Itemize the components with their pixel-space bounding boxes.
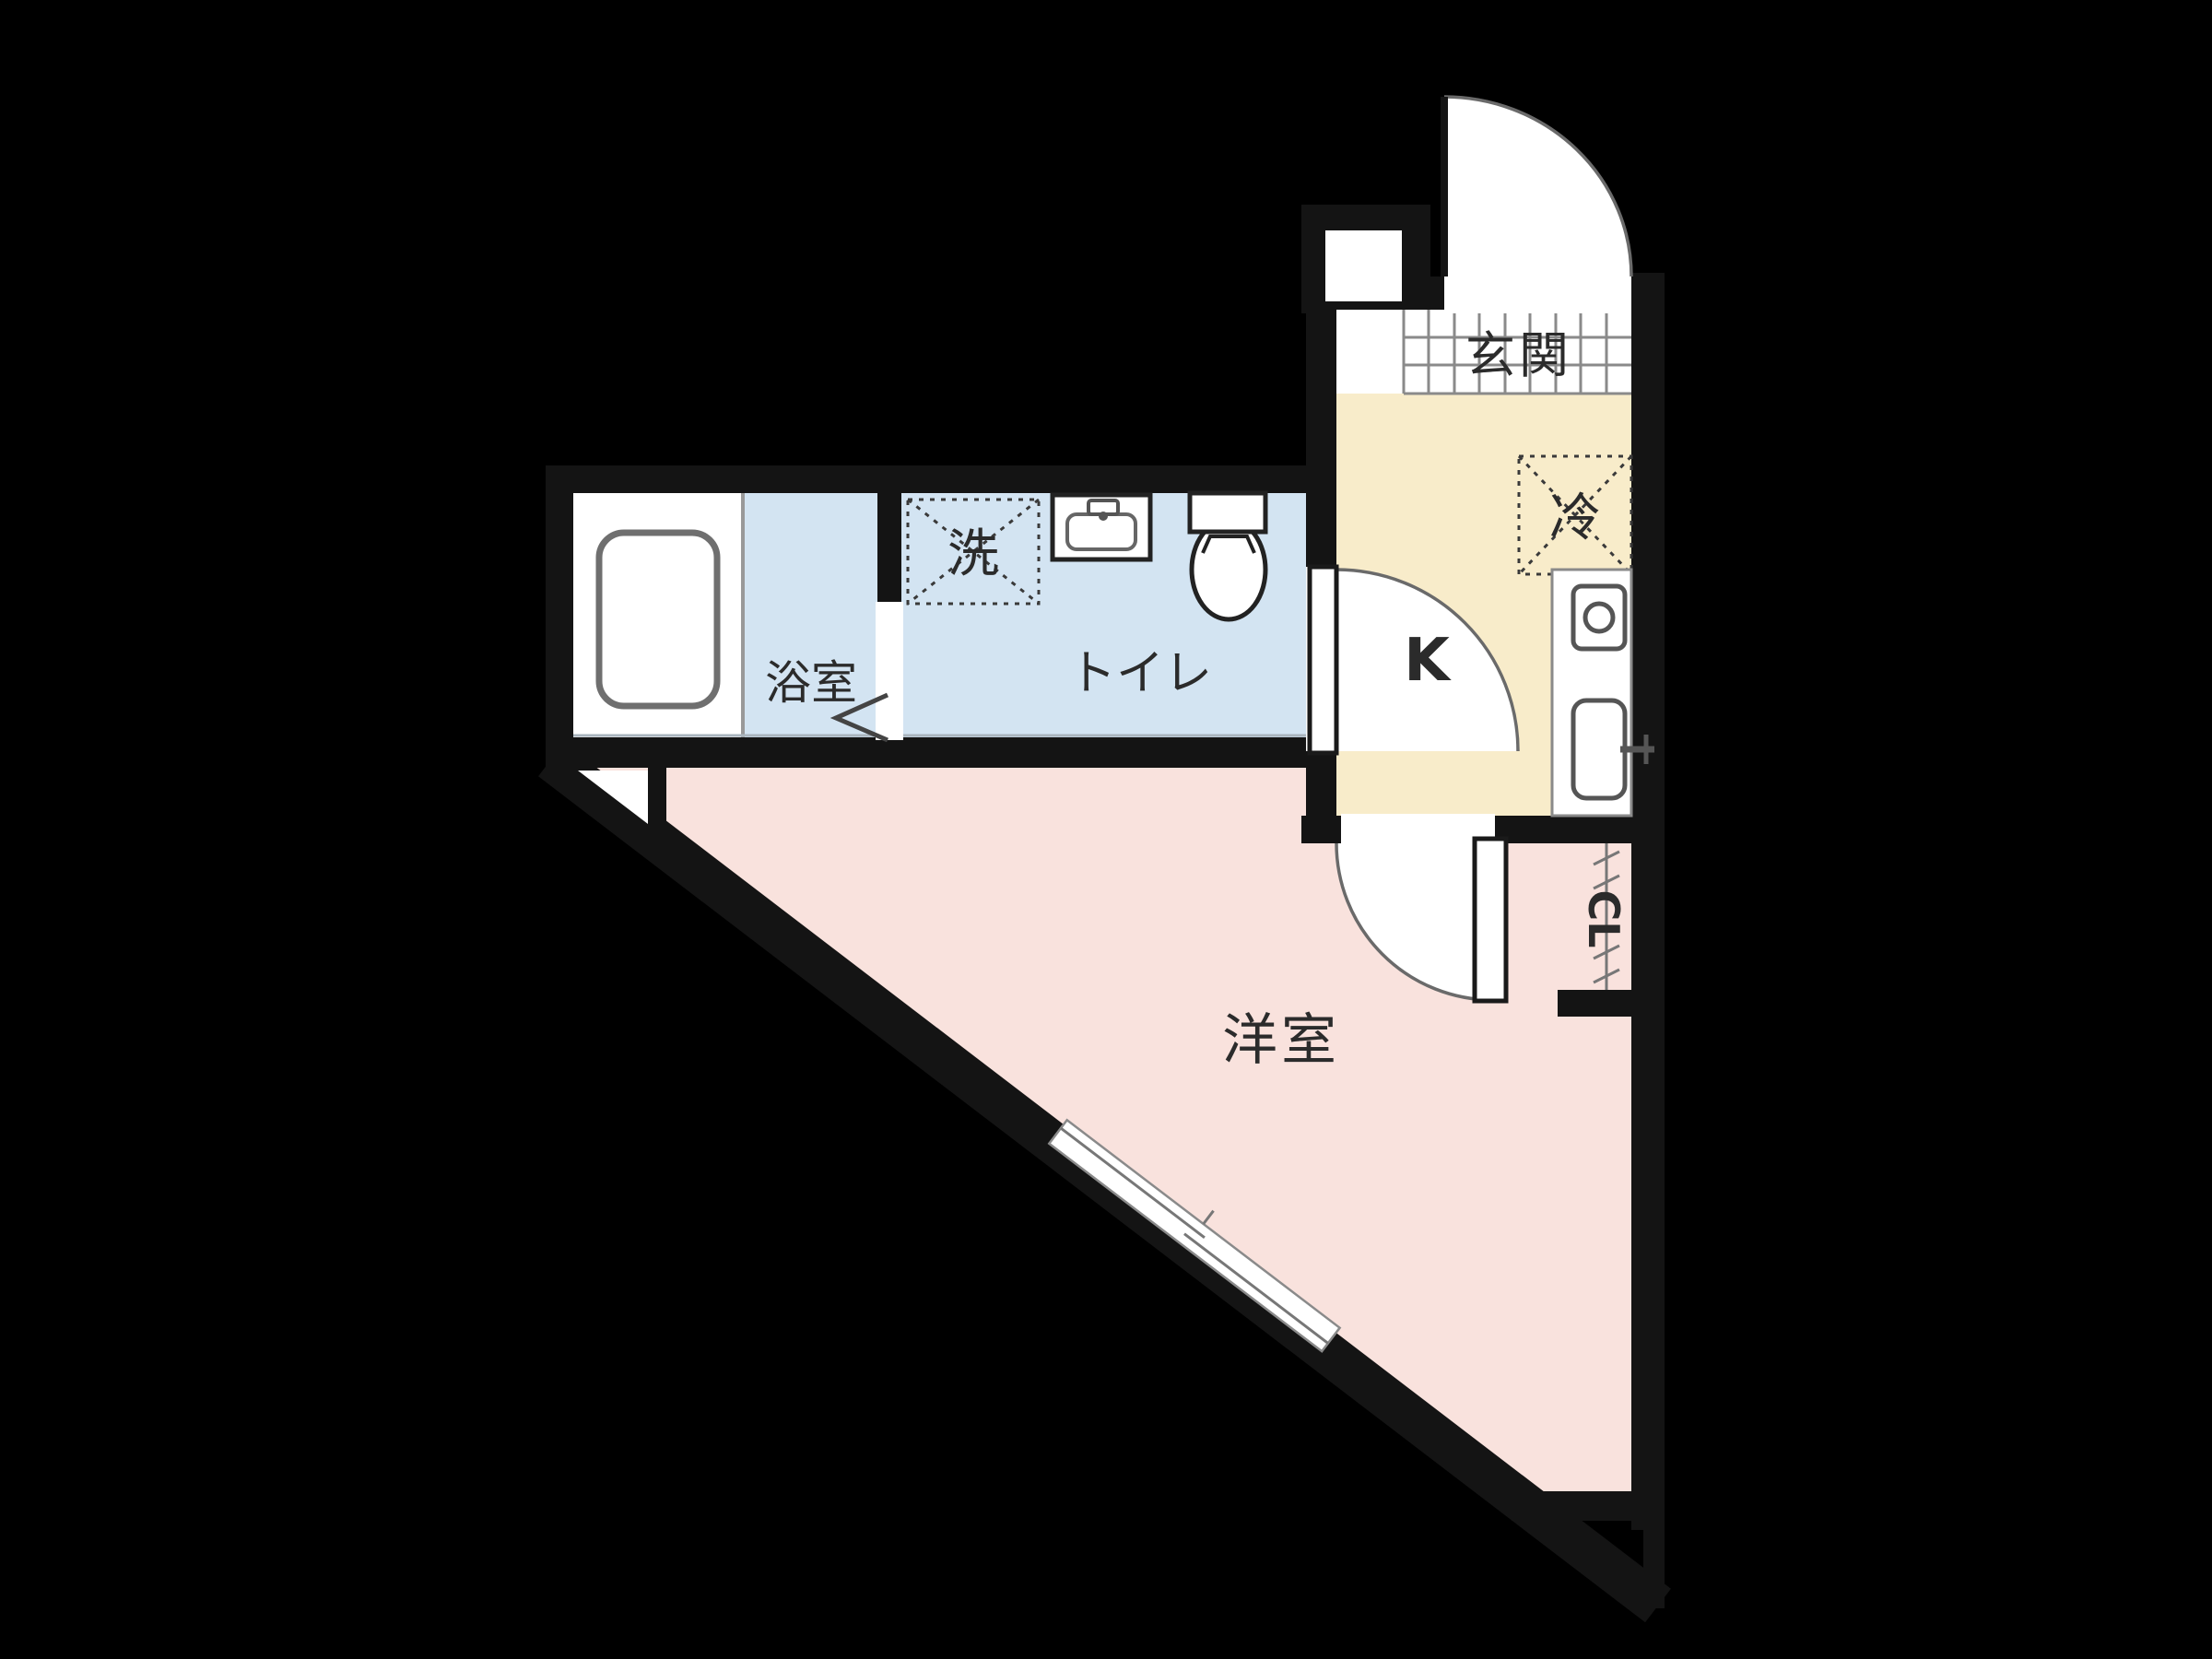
corner-post xyxy=(648,768,666,827)
wall-bath-toilet-divider xyxy=(877,493,901,602)
kitchen-sink-icon xyxy=(1573,700,1625,798)
washbasin-icon xyxy=(1053,495,1150,559)
wall-bath-top xyxy=(546,465,1336,493)
kitchen-label: K xyxy=(1404,627,1452,695)
bath-door-opening xyxy=(876,602,903,740)
wall-bath-left xyxy=(546,465,573,768)
floor-plan: 玄関 冷 K 洗 浴室 トイレ 洋室 CL xyxy=(0,0,2212,1659)
wall-closet-stub xyxy=(1558,990,1665,1017)
closet-label: CL xyxy=(1579,889,1629,947)
refrigerator-label: 冷 xyxy=(1549,488,1601,548)
wall-right-tip xyxy=(1643,1521,1665,1608)
wall-room-bottom xyxy=(1512,1491,1665,1521)
toilet-room-label: トイレ xyxy=(1068,646,1212,701)
entry-notch-window xyxy=(1325,230,1402,301)
wall-right xyxy=(1631,273,1665,1530)
k-door-leaf xyxy=(1310,567,1336,753)
wall-kitchen-left-upper xyxy=(1306,276,1336,567)
washer-label: 洗 xyxy=(947,524,999,584)
western-room-label: 洋室 xyxy=(1222,1008,1340,1073)
wall-bath-bottom xyxy=(546,737,1336,768)
room-door-leaf xyxy=(1475,839,1506,1001)
entrance-door-opening xyxy=(1444,273,1631,313)
bathroom-label: 浴室 xyxy=(765,656,857,710)
stove-burner-icon xyxy=(1585,604,1613,631)
bathtub-icon xyxy=(599,533,717,706)
genkan-label: 玄関 xyxy=(1465,326,1572,384)
floor-plan-page: 玄関 冷 K 洗 浴室 トイレ 洋室 CL xyxy=(0,0,2212,1659)
room-door-opening xyxy=(1341,814,1495,845)
toilet-icon xyxy=(1190,493,1265,619)
